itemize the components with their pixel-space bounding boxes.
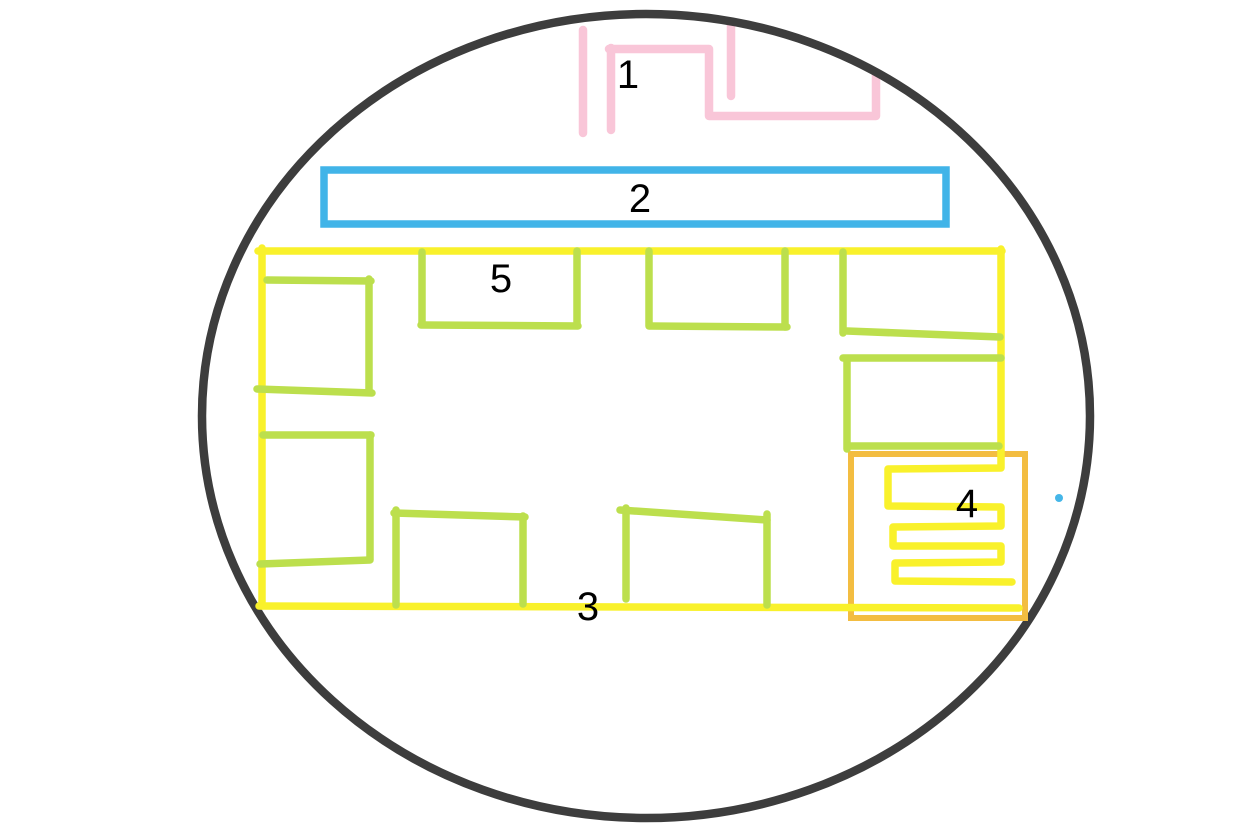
drawing-svg: 12345 [0,0,1236,837]
number-label-2: 2 [629,177,651,221]
green-box-bottom-2-stroke-2 [620,510,767,520]
green-box-left-lower [260,435,371,564]
green-box-left-lower-stroke-3 [260,560,370,564]
green-box-top-1-stroke-2 [421,325,578,326]
green-box-top-2 [649,251,787,327]
green-box-bottom-1 [394,510,525,605]
green-box-bottom-2 [620,508,767,605]
number-label-1: 1 [617,53,639,97]
number-label-3: 3 [577,585,599,629]
green-box-left-upper [257,279,372,393]
number-label-4: 4 [956,482,978,526]
green-box-right-middle [843,358,1001,449]
green-box-top-2-stroke-2 [650,326,787,327]
yellow-bottom-wall [259,606,1019,608]
green-box-left-upper-stroke-3 [257,389,372,393]
green-box-left-upper-stroke-1 [267,280,371,281]
pink-stroke-3 [609,49,876,116]
green-box-top-right-stroke-2 [847,331,1000,337]
green-box-top-right [843,252,1000,337]
blue-dot [1055,494,1063,502]
green-box-bottom-1-stroke-2 [394,513,525,517]
boundary-circle [202,14,1090,818]
number-label-5: 5 [490,257,512,301]
paint-canvas[interactable]: 12345 [0,0,1236,837]
orange-rect-region-4 [851,454,1025,618]
yellow-right-wall-and-coil [888,249,1012,582]
